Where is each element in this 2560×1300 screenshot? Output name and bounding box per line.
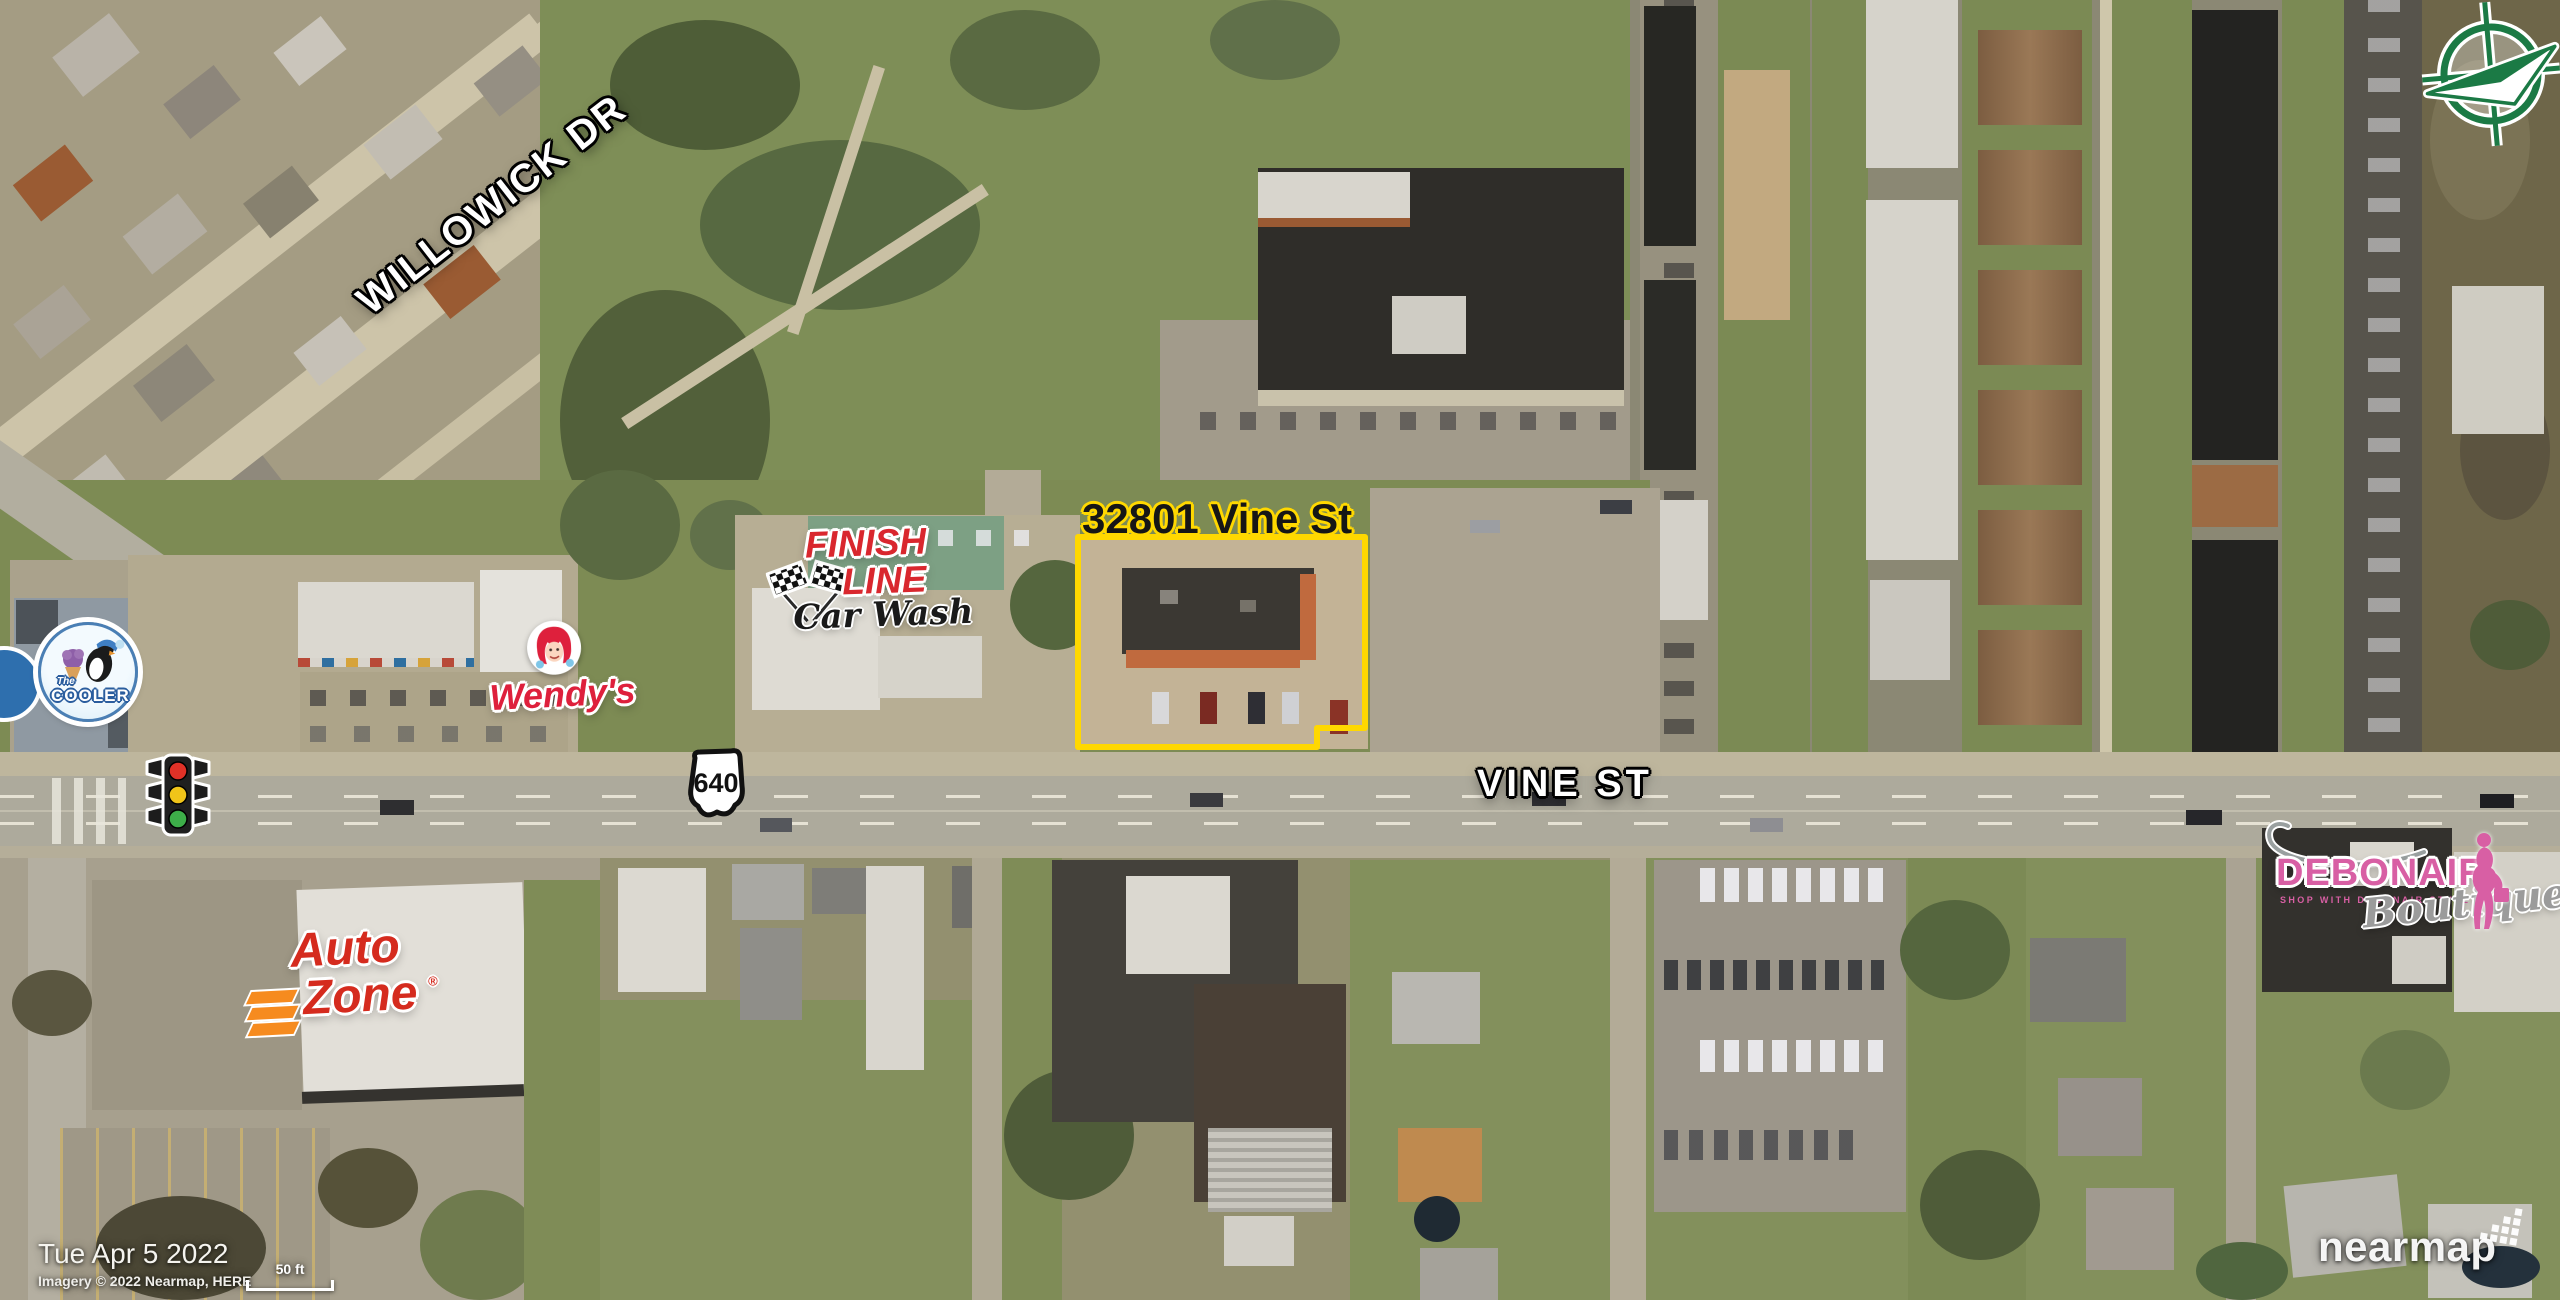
north-arrow-compass-icon [2418, 0, 2560, 150]
scale-bar-bracket [246, 1280, 334, 1291]
building-roof [298, 582, 474, 666]
tree-canopy [2470, 600, 2550, 670]
car [1470, 520, 1500, 533]
building-roof [2452, 286, 2544, 434]
house-roof [13, 145, 93, 222]
zone-text: Zone [302, 969, 419, 1023]
map-date: Tue Apr 5 2022 [38, 1240, 228, 1268]
wendys-wordmark: Wendy's [489, 673, 637, 717]
apartment-roof [2192, 465, 2278, 527]
walkway [2100, 0, 2112, 772]
wendys-emblem-icon [524, 617, 585, 678]
autozone-stripe [246, 990, 298, 1005]
car [760, 818, 792, 832]
house-roof [163, 65, 241, 139]
house-roof [52, 13, 140, 97]
tree-canopy [2360, 1030, 2450, 1110]
apartment-roof [1978, 150, 2082, 245]
building-roof [1258, 218, 1410, 227]
storefront-band [298, 658, 474, 667]
van-row [1664, 960, 1884, 990]
apartment-roof [1644, 6, 1696, 246]
car-wash-text: Car Wash [793, 595, 974, 635]
logo-debonair-boutique: DEBONAIR SHOP WITH DEBONAIR STYLE Boutiq… [2258, 818, 2558, 948]
lawn [1812, 0, 1868, 772]
house-roof [273, 16, 346, 86]
building-roof [1126, 876, 1230, 974]
lane-marking [0, 795, 2560, 798]
nearmap-watermark: nearmap [2318, 1206, 2548, 1276]
apartment-roof [1978, 630, 2082, 725]
parking-lot [1370, 488, 1660, 756]
apartment-roof [1978, 30, 2082, 125]
lawn [2282, 0, 2344, 772]
van-row [1700, 1040, 1890, 1072]
apartment-roof [1978, 390, 2082, 485]
tree-canopy [560, 470, 680, 580]
van-row [1664, 1130, 1864, 1160]
house-roof [123, 194, 208, 275]
tree-canopy [610, 20, 800, 150]
cooler-name-text: COOLER [51, 687, 130, 704]
debonair-silhouette-icon [2454, 830, 2520, 934]
imagery-attribution: Imagery © 2022 Nearmap, HERE [38, 1274, 251, 1288]
apartment-roof [1866, 200, 1958, 560]
finish-text: FINISH [804, 522, 926, 563]
street [972, 858, 1002, 1300]
tree-canopy [420, 1190, 540, 1300]
building-roof [1208, 1128, 1332, 1212]
car [2480, 794, 2514, 808]
scale-bar: 50 ft [244, 1262, 336, 1294]
subject-parcel-outline [1070, 528, 1380, 760]
nearmap-logo-icon [2477, 1203, 2528, 1254]
tree-canopy [1900, 900, 2010, 1000]
lawn [600, 1000, 1000, 1300]
house-roof [1392, 972, 1480, 1044]
house-roof [812, 868, 868, 914]
subject-parcel-label: 32801 Vine St [1082, 498, 1352, 540]
car [1190, 793, 1223, 807]
apartment-roof [1978, 270, 2082, 365]
house-roof [732, 864, 804, 920]
route-640-shield: 640 [685, 748, 747, 828]
tree-canopy [1210, 0, 1340, 80]
house-roof [740, 928, 802, 1020]
house-roof [1420, 1248, 1498, 1300]
building-roof [878, 636, 982, 698]
building-roof [1258, 172, 1410, 220]
house-roof [13, 285, 91, 359]
apartment-roof [2192, 540, 2278, 765]
crosswalk [52, 778, 126, 844]
house-roof [1398, 1128, 1482, 1202]
sidewalk [0, 846, 2560, 858]
house-roof [2030, 938, 2126, 1022]
apartment-roof [1870, 580, 1950, 680]
tree-canopy [12, 970, 92, 1036]
trampoline [1414, 1196, 1460, 1242]
apartment-roof [1724, 70, 1790, 320]
building-roof [866, 866, 924, 1070]
lawn [2112, 0, 2192, 772]
car [380, 800, 414, 815]
car-row [2368, 0, 2400, 772]
tree-canopy [950, 10, 1100, 110]
lawn [1350, 860, 1610, 1300]
street-label-vine-st: VINE ST [1477, 765, 1653, 803]
apartment-roof [1644, 280, 1696, 470]
registered-mark: ® [428, 974, 438, 987]
logo-finish-line-car-wash: FINISH LINE Car Wash [764, 512, 998, 640]
building-roof [1224, 1216, 1294, 1266]
car [1750, 818, 1783, 832]
tree-canopy [318, 1148, 418, 1228]
apartment-roof [2192, 10, 2278, 460]
tree-canopy [1920, 1150, 2040, 1260]
building-roof [1392, 296, 1466, 354]
route-number: 640 [693, 768, 738, 798]
van-row [1700, 868, 1890, 902]
building-roof [618, 868, 706, 992]
logo-autozone: Auto Zone ® [243, 914, 489, 1046]
house-roof [2086, 1188, 2174, 1270]
car-row [1200, 412, 1620, 430]
scale-bar-label: 50 ft [244, 1262, 336, 1276]
lane-marking [0, 822, 2560, 825]
street [2226, 858, 2256, 1300]
autozone-stripe [248, 1022, 300, 1037]
traffic-light-icon [143, 752, 213, 840]
autozone-stripe [247, 1006, 299, 1021]
apartment-roof [1978, 510, 2082, 605]
tree-canopy [2196, 1242, 2288, 1300]
nearmap-wordmark: nearmap [2318, 1226, 2497, 1268]
house-roof [2058, 1078, 2142, 1156]
car [1600, 500, 1632, 514]
apartment-roof [1866, 0, 1958, 168]
logo-the-cooler: The COOLER [38, 622, 138, 722]
lawn [524, 880, 604, 1300]
street [1610, 858, 1646, 1300]
walkway [1258, 390, 1624, 406]
aerial-map-screenshot: WILLOWICK DR VINE ST 640 32801 Vine St [0, 0, 2560, 1300]
car [2186, 810, 2222, 825]
logo-wendys: Wendy's [485, 596, 652, 734]
